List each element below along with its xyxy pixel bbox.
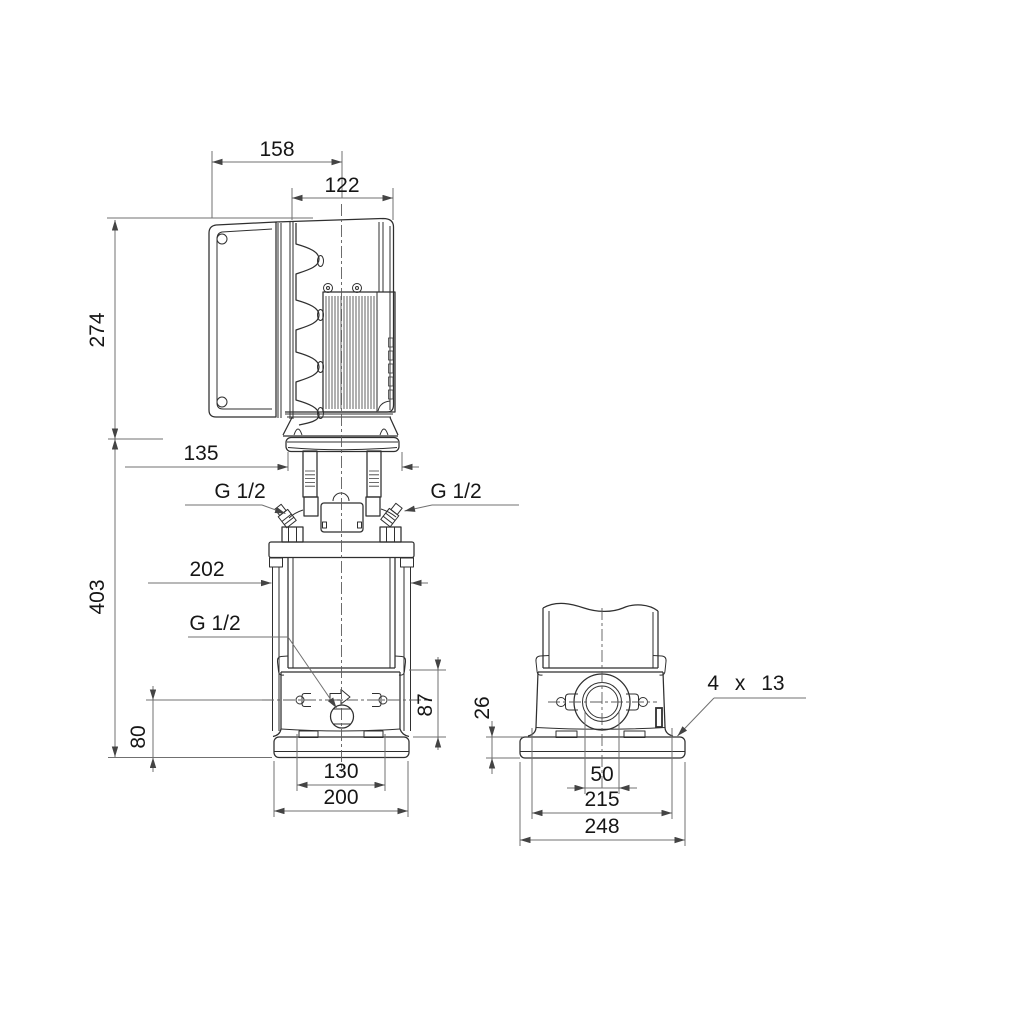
motor-adapter [283, 418, 399, 452]
dim-text-135: 135 [183, 442, 218, 465]
coupling-guard-right [367, 451, 381, 497]
clamp-tab [656, 708, 662, 727]
dim-text-202: 202 [189, 558, 224, 581]
motor-screw-left [324, 284, 333, 293]
dim-text-158: 158 [259, 138, 294, 161]
coupling-block [321, 503, 363, 532]
vent-plug-left [273, 503, 296, 528]
extension-lines [107, 151, 685, 846]
dim-text-26: 26 [471, 696, 494, 719]
dim-text-87: 87 [414, 693, 437, 716]
leader-bolt-holes [678, 698, 715, 736]
dim-text-200: 200 [323, 786, 358, 809]
dim-text-122: 122 [324, 174, 359, 197]
leader-vent-right [405, 505, 433, 511]
pump-chamber [273, 656, 409, 737]
dim-text-bolt-holes: 4 x 13 [707, 672, 784, 695]
drain-plug [331, 705, 354, 728]
dim-text-274: 274 [86, 312, 109, 347]
coupling-guard-left [303, 451, 317, 497]
cover-hole-top [217, 234, 227, 244]
label-vent-right: G 1/2 [430, 480, 481, 503]
cover-hole-bottom [217, 397, 227, 407]
motor-fins [323, 284, 395, 413]
leader-vent-left [262, 505, 286, 514]
cable-gland-profile [296, 223, 324, 425]
dim-text-50: 50 [590, 763, 613, 786]
dim-text-80: 80 [127, 725, 150, 748]
dimension-annotations: 158 122 274 403 135 202 G 1/2 G 1/2 G 1/… [86, 138, 806, 846]
motor-converter-cover [209, 222, 276, 417]
motor-hinge-seam [278, 222, 293, 419]
label-vent-left: G 1/2 [214, 480, 265, 503]
shaft-dome [333, 493, 349, 501]
head-nut-left [282, 527, 303, 542]
end-base-plate [520, 737, 685, 758]
drawing-svg: 158 122 274 403 135 202 G 1/2 G 1/2 G 1/… [0, 0, 1024, 1024]
dimension-lines [115, 162, 685, 840]
leader-lines [185, 505, 806, 736]
label-drain: G 1/2 [189, 612, 240, 635]
dim-text-403: 403 [86, 579, 109, 614]
dim-text-130: 130 [323, 760, 358, 783]
dim-text-248: 248 [584, 815, 619, 838]
break-line [543, 603, 658, 611]
motor-screw-right [353, 284, 362, 293]
dim-text-215: 215 [584, 788, 619, 811]
head-nut-right [380, 527, 401, 542]
flow-direction-arrow [330, 690, 350, 705]
pump-dimensional-drawing: 158 122 274 403 135 202 G 1/2 G 1/2 G 1/… [0, 0, 1024, 1024]
